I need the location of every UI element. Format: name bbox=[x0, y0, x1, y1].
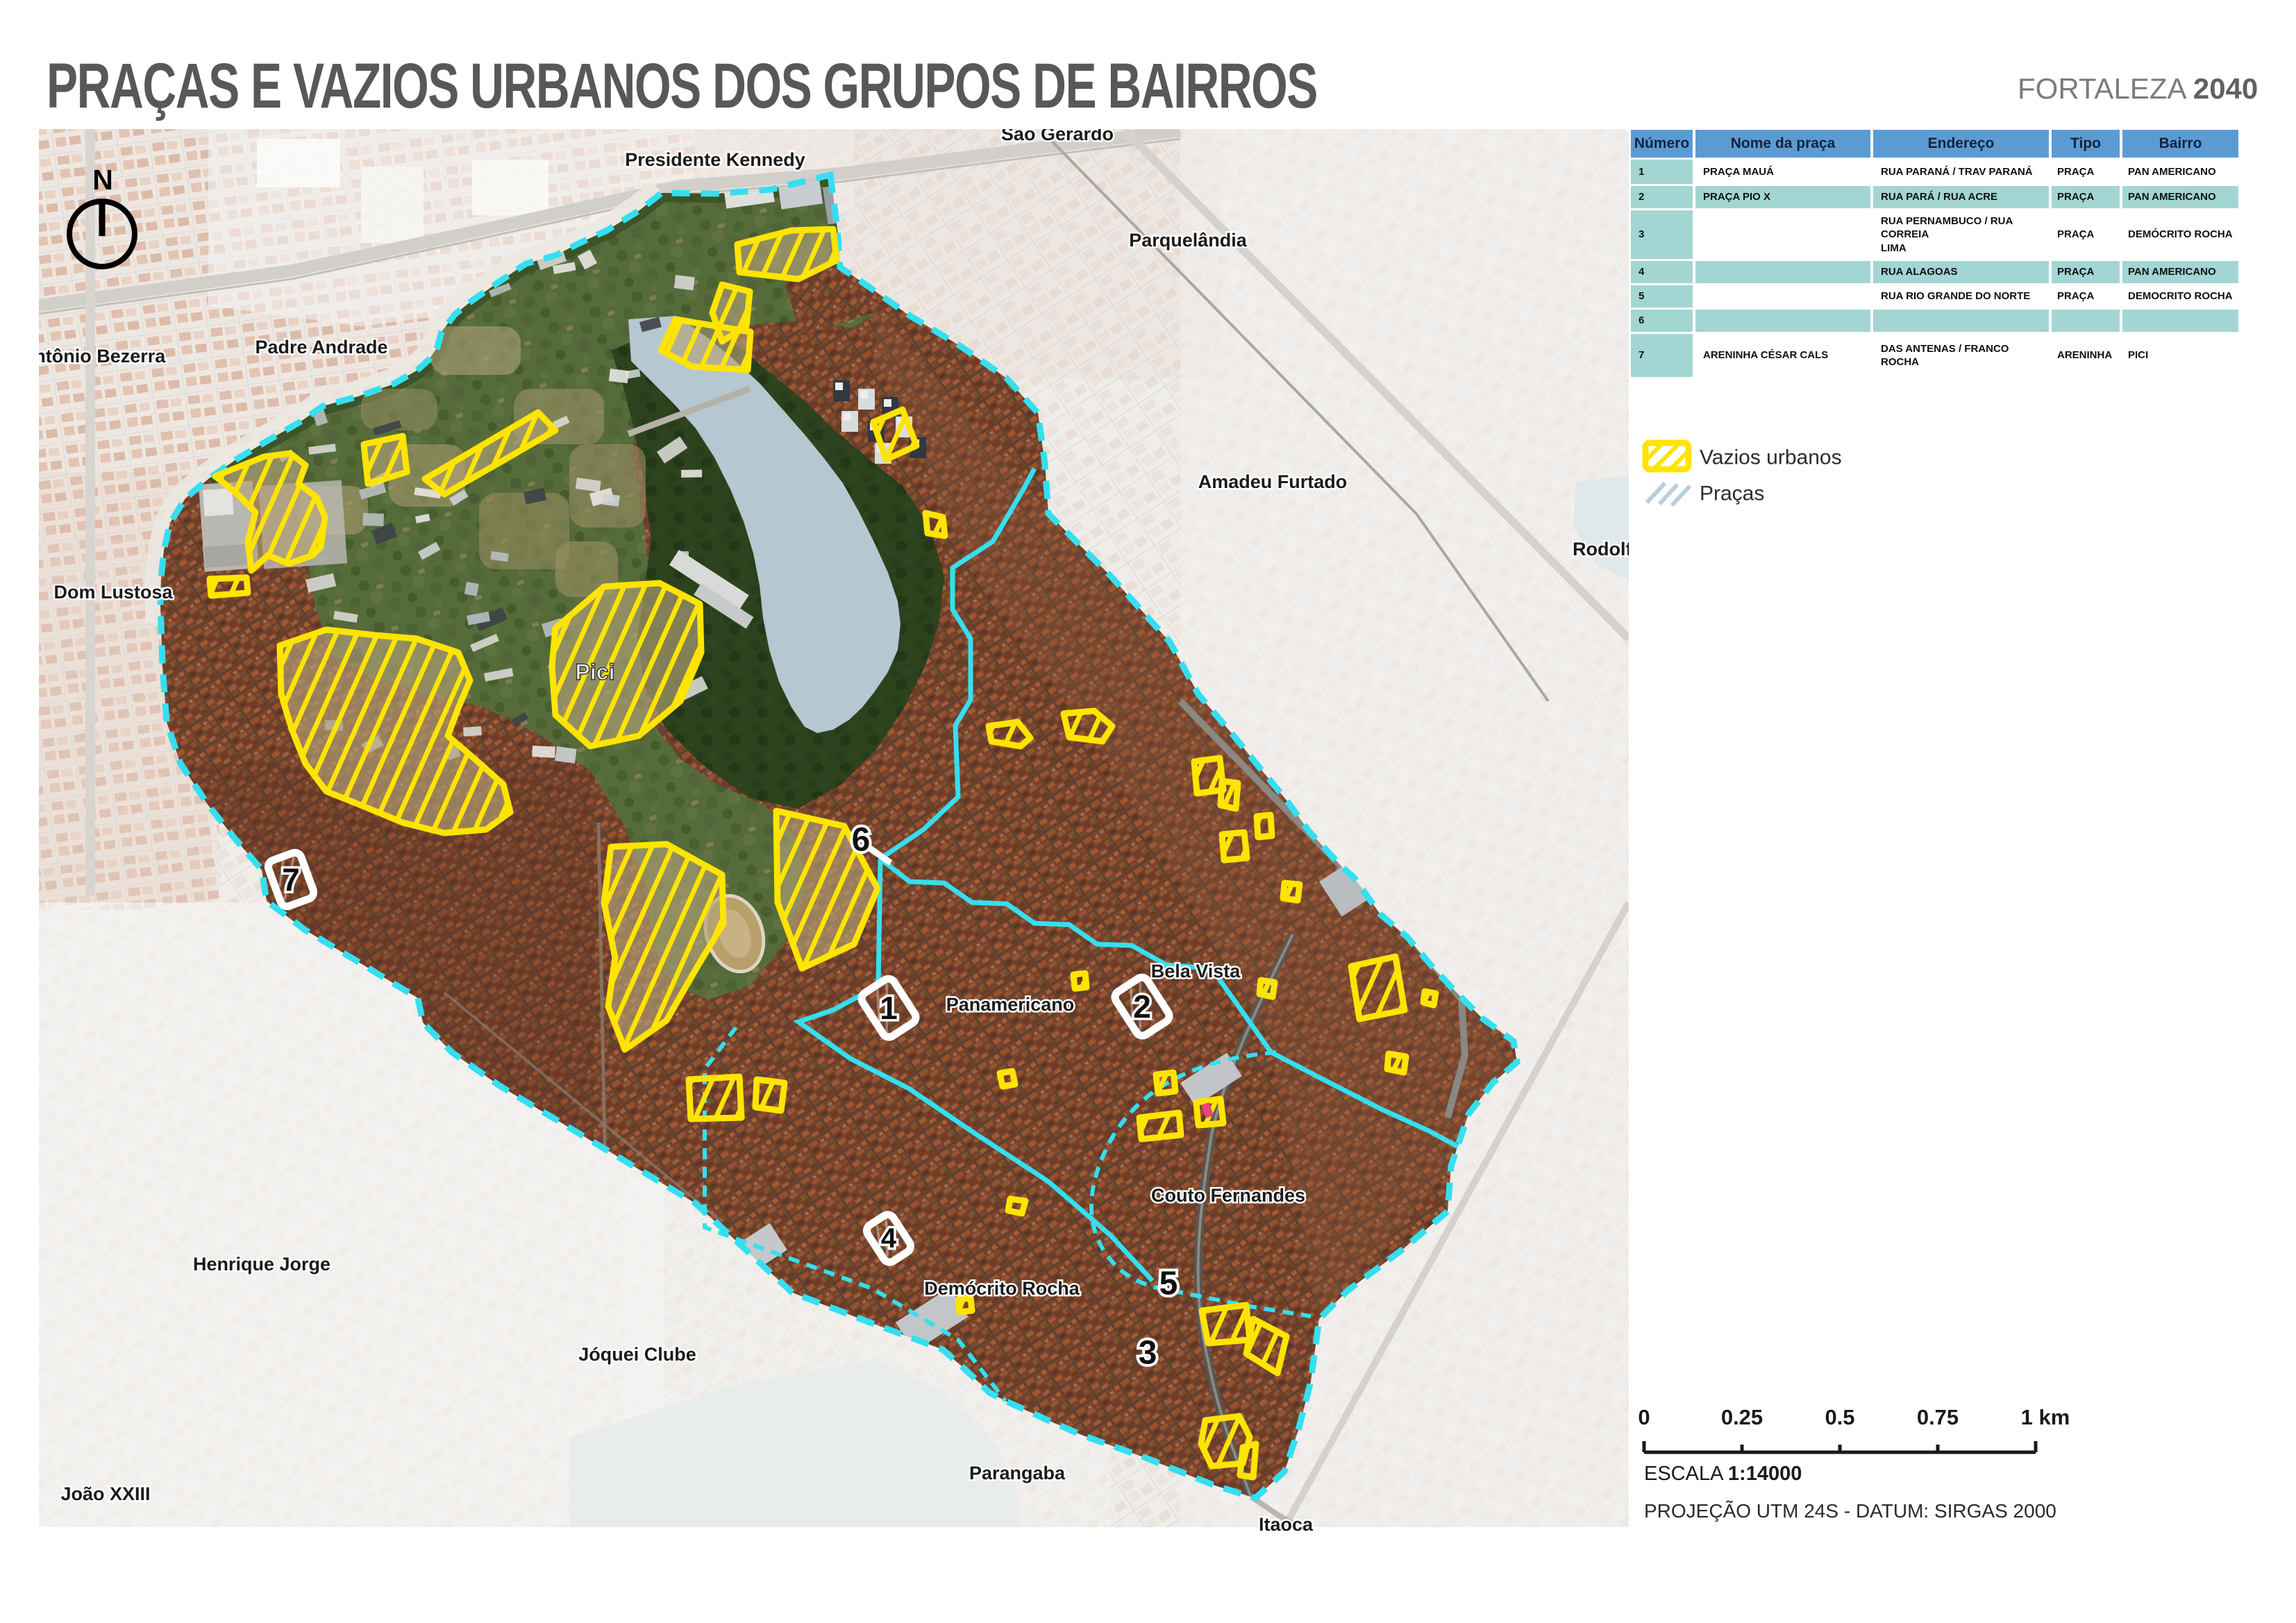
svg-text:7: 7 bbox=[282, 861, 300, 898]
svg-text:Presidente Kennedy: Presidente Kennedy bbox=[625, 149, 805, 170]
svg-text:Jóquei Clube: Jóquei Clube bbox=[578, 1344, 696, 1365]
svg-text:5: 5 bbox=[1159, 1265, 1178, 1302]
svg-text:Bela Vista: Bela Vista bbox=[1151, 961, 1241, 982]
svg-text:6: 6 bbox=[852, 822, 871, 859]
svg-text:3: 3 bbox=[1139, 1335, 1157, 1372]
svg-text:Amadeu Furtado: Amadeu Furtado bbox=[1198, 471, 1348, 492]
svg-text:0.25: 0.25 bbox=[1721, 1405, 1763, 1429]
svg-text:Rodolfo: Rodolfo bbox=[1573, 539, 1643, 560]
svg-text:N: N bbox=[92, 164, 113, 196]
svg-text:Itaoca: Itaoca bbox=[1259, 1514, 1314, 1535]
svg-text:0: 0 bbox=[1638, 1405, 1650, 1429]
svg-text:ESCALA 1:14000: ESCALA 1:14000 bbox=[1644, 1463, 1802, 1485]
svg-text:Couto Fernandes: Couto Fernandes bbox=[1151, 1185, 1305, 1206]
svg-text:Demócrito Rocha: Demócrito Rocha bbox=[924, 1278, 1080, 1299]
svg-text:1: 1 bbox=[880, 990, 898, 1026]
svg-text:Antônio Bezerra: Antônio Bezerra bbox=[21, 346, 167, 367]
svg-text:João XXIII: João XXIII bbox=[60, 1483, 150, 1504]
svg-text:4: 4 bbox=[881, 1223, 897, 1254]
svg-text:Parangaba: Parangaba bbox=[969, 1463, 1066, 1483]
svg-text:0.5: 0.5 bbox=[1825, 1405, 1854, 1429]
svg-text:Padre Andrade: Padre Andrade bbox=[255, 337, 387, 358]
svg-text:Praças: Praças bbox=[1700, 482, 1764, 505]
svg-text:São Gerardo: São Gerardo bbox=[1001, 124, 1114, 144]
svg-text:Parquelândia: Parquelândia bbox=[1129, 230, 1248, 251]
svg-text:Panamericano: Panamericano bbox=[946, 994, 1075, 1015]
svg-text:PROJEÇÃO UTM 24S - DATUM: SIRG: PROJEÇÃO UTM 24S - DATUM: SIRGAS 2000 bbox=[1644, 1500, 2056, 1522]
svg-text:Henrique Jorge: Henrique Jorge bbox=[193, 1254, 330, 1275]
svg-text:Dom Lustosa: Dom Lustosa bbox=[53, 582, 173, 603]
svg-text:2: 2 bbox=[1133, 989, 1151, 1025]
svg-text:1 km: 1 km bbox=[2021, 1405, 2070, 1429]
svg-text:Vazios urbanos: Vazios urbanos bbox=[1700, 446, 1842, 469]
svg-text:0.75: 0.75 bbox=[1917, 1405, 1959, 1429]
svg-text:Pici: Pici bbox=[576, 659, 615, 684]
